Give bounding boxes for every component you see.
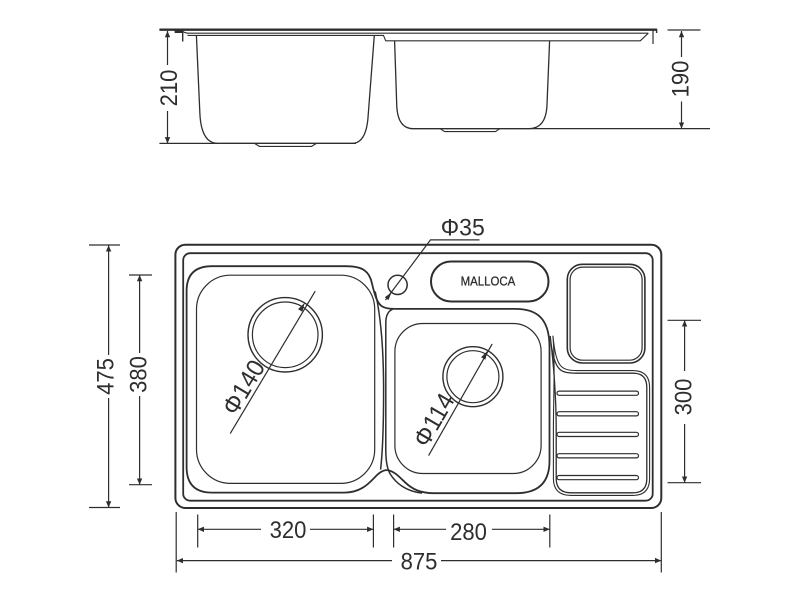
svg-text:300: 300 (670, 379, 697, 416)
svg-text:MALLOCA: MALLOCA (461, 274, 516, 289)
svg-text:380: 380 (124, 356, 151, 393)
svg-text:875: 875 (401, 547, 438, 574)
svg-text:320: 320 (270, 516, 307, 543)
svg-text:210: 210 (155, 70, 182, 107)
svg-text:280: 280 (450, 518, 487, 545)
svg-text:Φ140: Φ140 (217, 355, 271, 419)
svg-text:475: 475 (92, 358, 119, 395)
svg-text:Φ114: Φ114 (408, 389, 460, 452)
svg-text:190: 190 (667, 61, 694, 98)
svg-text:Φ35: Φ35 (441, 214, 485, 241)
